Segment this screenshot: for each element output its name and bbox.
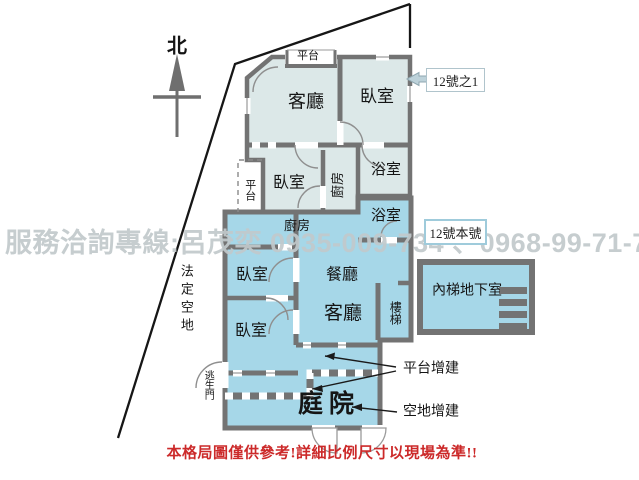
room-label-bedroom-upper: 臥室 (360, 88, 394, 106)
room-label-platform-top: 平台 (297, 51, 319, 63)
label-escape-door: 逃生門 (202, 370, 213, 400)
disclaimer-text: 本格局圖僅供參考!詳細比例尺寸以現場為準!! (167, 442, 478, 463)
north-label: 北 (167, 37, 187, 58)
room-label-living-lower: 客廳 (324, 304, 362, 324)
room-label-bedroom-lower-1: 臥室 (236, 268, 268, 285)
room-label-stairs: 樓梯 (389, 301, 402, 325)
annotation-open-space-addition: 空地增建 (403, 406, 459, 421)
room-label-basement: 內梯地下室 (432, 285, 502, 300)
room-label-courtyard: 庭院 (298, 392, 360, 418)
room-label-bath-lower: 浴室 (371, 209, 401, 225)
tag-unit-12-1: 12號之1 (426, 68, 485, 92)
room-label-bath-upper: 浴室 (371, 163, 401, 179)
room-label-bedroom-lower-2: 臥室 (235, 324, 267, 341)
room-label-living-upper: 客廳 (288, 93, 324, 112)
tag-unit-12-1-text: 12號之1 (433, 71, 479, 90)
room-label-dining: 餐廳 (326, 268, 358, 285)
floor-plan: 服務洽詢專線:呂茂奕 0935-009-734 、0968-99-71-75 北… (0, 0, 639, 480)
room-label-platform-left: 平台 (243, 179, 255, 201)
north-arrow-icon (153, 54, 201, 137)
watermark-text: 服務洽詢專線:呂茂奕 0935-009-734 、0968-99-71-75 (5, 221, 639, 260)
label-legal-open-space: 法定空地 (179, 264, 193, 336)
upper-unit-outline (247, 57, 410, 212)
room-label-bedroom-mid: 臥室 (273, 176, 305, 193)
annotation-platform-addition: 平台增建 (403, 363, 459, 378)
room-label-kitchen-upper: 廚房 (331, 172, 345, 198)
room-label-kitchen-lower: 廚房 (284, 219, 310, 233)
tag-unit-12-main-text: 12號本號 (429, 223, 481, 242)
tag-unit-12-main: 12號本號 (424, 219, 487, 245)
